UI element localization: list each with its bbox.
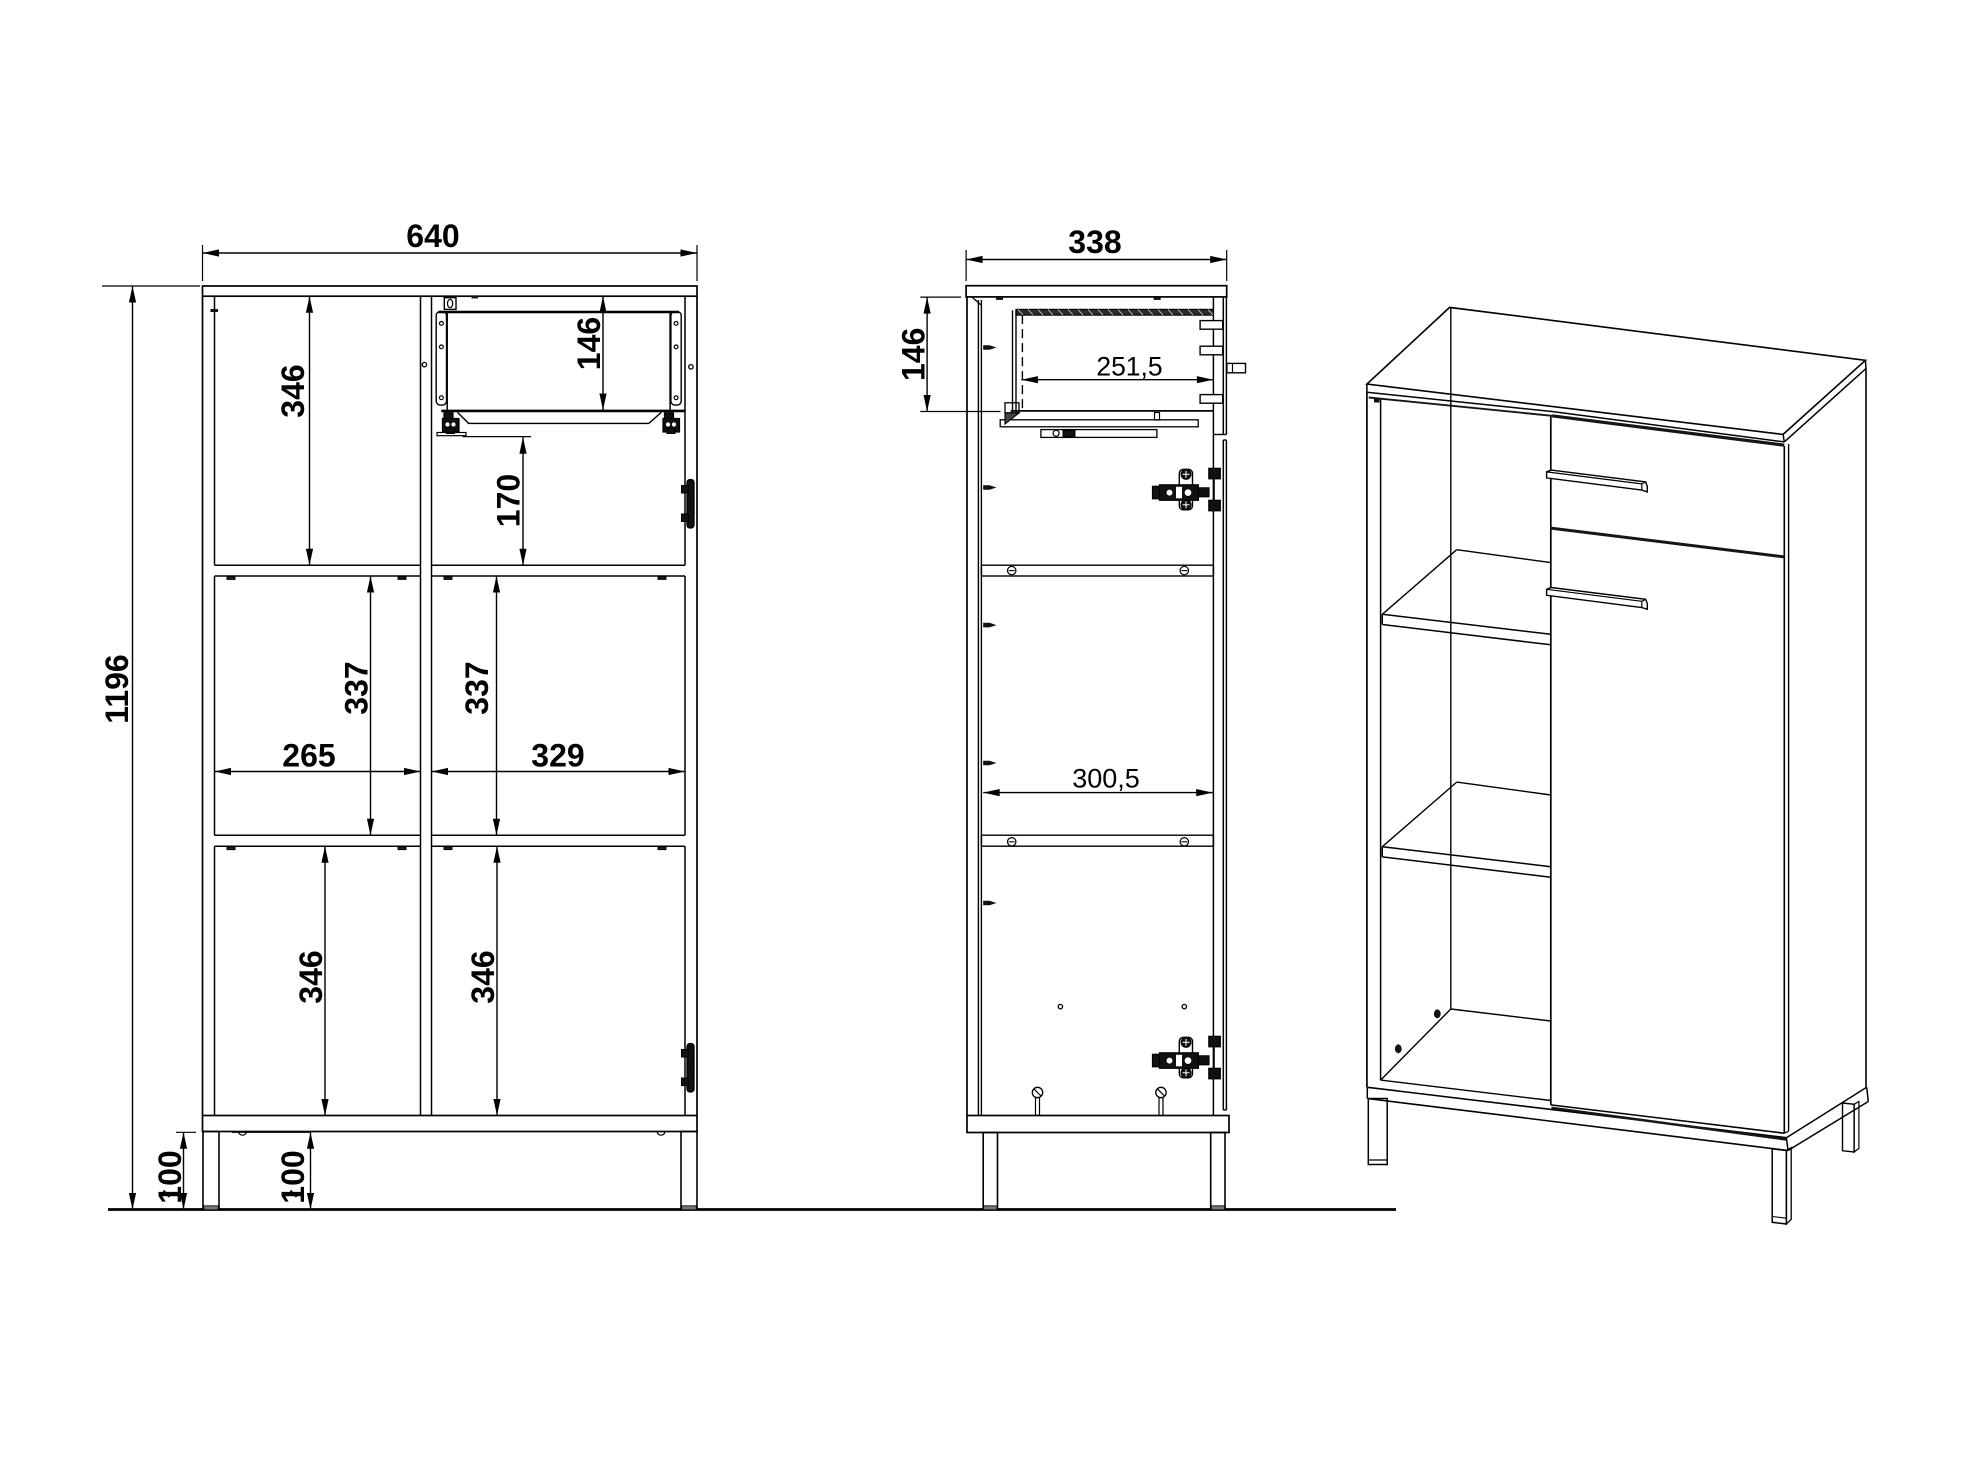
svg-text:329: 329 (531, 738, 584, 774)
svg-text:146: 146 (896, 328, 932, 381)
svg-text:337: 337 (339, 661, 375, 714)
svg-text:1196: 1196 (99, 654, 135, 723)
svg-text:346: 346 (465, 950, 501, 1003)
svg-text:640: 640 (406, 218, 459, 254)
svg-text:300,5: 300,5 (1072, 764, 1140, 794)
svg-text:100: 100 (152, 1150, 188, 1203)
svg-text:170: 170 (491, 474, 527, 527)
svg-text:337: 337 (459, 661, 495, 714)
svg-text:251,5: 251,5 (1096, 352, 1162, 382)
svg-text:338: 338 (1068, 224, 1121, 260)
svg-text:346: 346 (275, 364, 311, 417)
svg-text:146: 146 (571, 317, 607, 370)
svg-text:265: 265 (282, 738, 335, 774)
svg-text:346: 346 (293, 950, 329, 1003)
svg-text:100: 100 (275, 1150, 311, 1203)
